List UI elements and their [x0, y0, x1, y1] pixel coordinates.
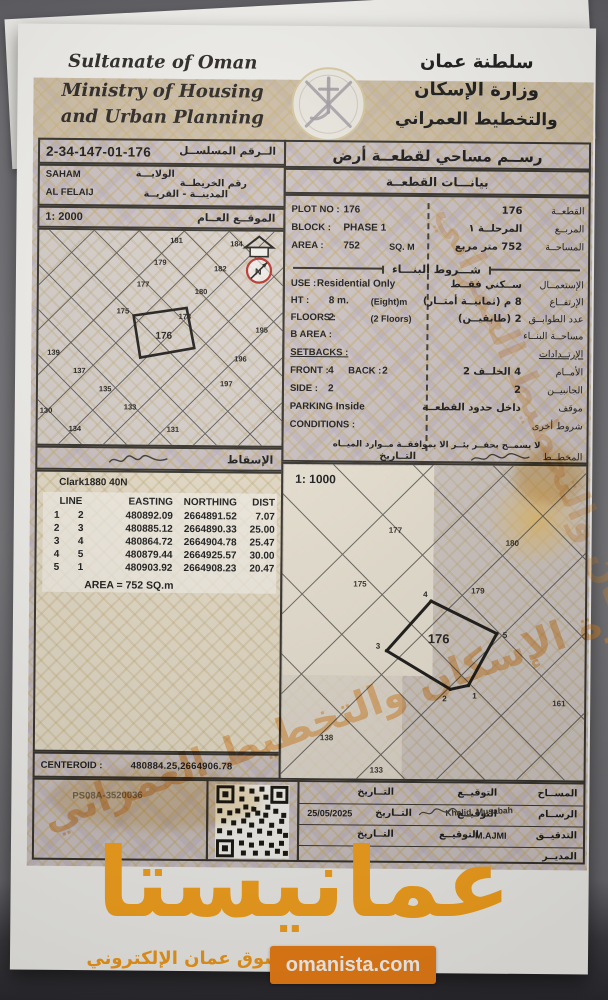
svg-text:130: 130 [40, 406, 53, 415]
surveyor-label: المســاح [538, 784, 578, 804]
svg-text:N: N [255, 267, 262, 277]
svg-text:137: 137 [73, 366, 86, 375]
manager-label: المديــر [542, 847, 577, 867]
plot-no-row: PLOT NO : 176 176 القطعــة [285, 202, 588, 221]
svg-text:175: 175 [117, 306, 130, 315]
serial-number-row: 2-34-147-01-176 الــرقم المسلســل [38, 138, 286, 166]
omanista-link[interactable]: omanista.com [270, 946, 436, 984]
town-value: AL FELAIJ [46, 187, 94, 198]
document-code: PS08A-3520036 [72, 790, 142, 802]
projection-row: الإسقاط [35, 446, 283, 472]
projection-signature [107, 452, 171, 469]
svg-text:175: 175 [353, 579, 367, 588]
svg-text:4: 4 [423, 590, 428, 599]
front-back-row: FRONT : 4 BACK : 2 4 الخلــف 2 الأمــام [284, 363, 587, 382]
col-dist: DIST [237, 497, 275, 508]
town-label: المدينــة - القريــة [144, 189, 228, 201]
serial-number-value: 2-34-147-01-176 [46, 144, 151, 160]
photo-background: Sultanate of Oman Ministry of Housing an… [0, 0, 608, 1000]
document-paper: Sultanate of Oman Ministry of Housing an… [10, 23, 596, 974]
svg-text:196: 196 [234, 354, 247, 363]
date-label: التــاريخ [357, 824, 394, 844]
qr-code [215, 784, 290, 859]
location-map: 181184 179182 177180 175178 176 195196 1… [35, 228, 285, 448]
area-row: AREA : 752 SQ. M 752 متر مربع المساحــة [285, 238, 588, 257]
main-map-drawing: 4 5 1 2 3 176 177 175 179 180 161 138 13… [281, 464, 587, 781]
location-row: SAHAM AL FELAIJ الولايـــة رقم الخريطــة… [38, 164, 286, 208]
subject-plot-number: 176 [155, 331, 172, 342]
svg-text:184: 184 [230, 239, 243, 248]
svg-text:3: 3 [376, 642, 381, 651]
draftsman-signature [417, 806, 461, 820]
svg-text:179: 179 [471, 586, 485, 595]
svg-text:197: 197 [220, 379, 233, 388]
svg-text:1: 1 [472, 691, 477, 700]
subtitle-row: بيانـــات القطعــة [284, 168, 591, 197]
svg-text:133: 133 [124, 402, 137, 411]
document-code-cell: PS08A-3520036 [32, 778, 209, 862]
svg-text:177: 177 [389, 526, 403, 535]
coordinates-table: LINEEASTINGNORTHINGDIST 12480892.0926648… [46, 496, 277, 577]
svg-text:180: 180 [506, 539, 520, 548]
signature-label: التوقيــع [439, 825, 479, 845]
location-map-drawing: 181184 179182 177180 175178 176 195196 1… [37, 230, 283, 446]
manager-row: المديــر [299, 845, 583, 868]
document-title: رســم مساحي لقطعــة أرض [286, 142, 589, 171]
svg-text:161: 161 [552, 699, 566, 708]
svg-text:135: 135 [99, 384, 112, 393]
col-easting: EASTING [95, 496, 173, 508]
checker-name: M.AJMI [475, 826, 507, 846]
svg-text:134: 134 [69, 424, 82, 433]
use-row: USE : Residential Only ســكني فقــط الإس… [285, 276, 588, 295]
setbacks-row: SETBACKS : الإرتــدادات [284, 345, 587, 364]
svg-text:180: 180 [195, 287, 208, 296]
serial-number-label: الــرقم المسلســل [179, 145, 276, 158]
conditions-row: CONDITIONS : شروط أخرى [284, 417, 587, 436]
checker-label: التدقيــق [536, 826, 578, 846]
country-name-en: Sultanate of Oman [58, 51, 268, 74]
datum-label: Clark1880 40N [59, 477, 127, 489]
side-row: SIDE : 2 2 الجانبيــن [284, 381, 587, 400]
main-map-scale: 1: 1000 [295, 472, 336, 486]
north-arrow-icon: N [245, 236, 273, 282]
wilaya-label: الولايـــة [136, 169, 175, 180]
location-map-scale: 1: 2000 [45, 211, 82, 223]
main-plot-map: 4 5 1 2 3 176 177 175 179 180 161 138 13… [279, 462, 589, 783]
scale-row: 1: 2000 الموقــع العــام [37, 206, 285, 230]
centroid-row: CENTEROID : 480884.25,2664906.78 [33, 752, 281, 780]
svg-text:181: 181 [170, 236, 183, 245]
col-northing: NORTHING [173, 497, 237, 509]
col-line: LINE [47, 496, 95, 507]
svg-text:138: 138 [320, 733, 334, 742]
svg-text:179: 179 [154, 258, 167, 267]
building-area-row: B AREA : مساحــة البنــاء [284, 327, 587, 346]
block-row: BLOCK : PHASE 1 المرحلــة ١ المربــع [285, 220, 588, 239]
projection-label: الإسقاط [227, 453, 273, 466]
map-number-label: رقم الخريطــة [180, 178, 247, 190]
table-row: 51480903.922664908.2320.47 [46, 562, 276, 577]
qr-cell [206, 779, 300, 862]
area-total: AREA = 752 SQ.m [84, 579, 173, 592]
svg-text:5: 5 [503, 631, 508, 640]
centroid-value: 480884.25,2664906.78 [131, 761, 233, 773]
svg-text:139: 139 [47, 348, 60, 357]
svg-text:177: 177 [137, 280, 150, 289]
svg-text:195: 195 [255, 326, 268, 335]
omanista-tagline: سوق عمان الإلكتروني [82, 948, 282, 969]
svg-text:133: 133 [370, 766, 384, 775]
svg-text:2: 2 [442, 694, 447, 703]
ministry-name-en-line2: and Urban Planning [57, 106, 267, 129]
centroid-label: CENTEROID : [41, 760, 103, 772]
date-label: التــاريخ [375, 804, 412, 824]
draftsman-date: 25/05/2025 [307, 803, 352, 823]
ministry-name-ar-line1: وزارة الإسكان [385, 79, 567, 102]
svg-text:178: 178 [179, 312, 192, 321]
ministry-name-en-line1: Ministry of Housing [57, 80, 267, 103]
signature-table: المســاح التوقيــع التــاريخ الرســام ال… [297, 780, 586, 865]
svg-text:182: 182 [214, 264, 227, 273]
plot-data-box: PLOT NO : 176 176 القطعــة BLOCK : PHASE… [281, 194, 590, 465]
subject-plot-number: 176 [428, 631, 450, 646]
ministry-name-ar-line2: والتخطيط العمراني [385, 109, 567, 131]
floors-row: FLOORS : 2 (2 Floors) 2 (طابقيــن) عدد ا… [285, 310, 588, 329]
document-subtitle: بيانـــات القطعــة [286, 170, 589, 196]
parking-row: PARKING : Inside داخل حدود القطعــة موقف [284, 399, 587, 418]
document-title-row: رســم مساحي لقطعــة أرض [284, 140, 591, 171]
date-label: التــاريخ [357, 782, 394, 802]
scale-label: الموقــع العــام [197, 212, 275, 225]
height-row: HT : 8 m. (Eight)m 8 م (ثمانيــة أمتــار… [285, 293, 588, 312]
draftsman-label: الرســام [538, 805, 577, 825]
coordinates-box: Clark1880 40N LINEEASTINGNORTHINGDIST 12… [33, 470, 283, 754]
country-name-ar: سلطنة عمان [386, 51, 568, 74]
ministry-emblem-icon [290, 66, 367, 143]
wilaya-value: SAHAM [46, 169, 81, 180]
svg-text:131: 131 [167, 425, 180, 434]
